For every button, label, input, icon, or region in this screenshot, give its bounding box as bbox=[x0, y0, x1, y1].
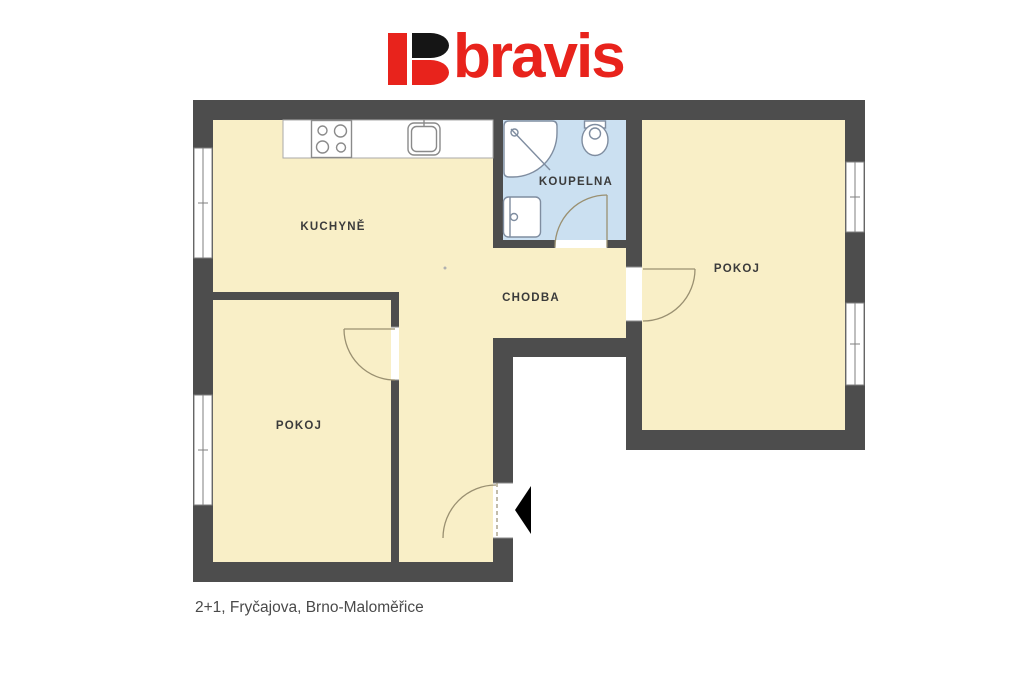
window-right-room-upper bbox=[846, 162, 864, 232]
window-kitchen-left bbox=[194, 148, 212, 258]
kitchen-fixtures bbox=[283, 120, 493, 158]
label-room-right: POKOJ bbox=[714, 263, 760, 275]
floorplan-page: bravis bbox=[0, 0, 1024, 678]
window-right-room-lower bbox=[846, 303, 864, 385]
label-hallway: CHODBA bbox=[502, 292, 560, 304]
right-room-door-opening bbox=[626, 267, 642, 321]
window-left-room bbox=[194, 395, 212, 505]
bathroom-sink bbox=[504, 197, 541, 237]
label-room-left: POKOJ bbox=[276, 420, 322, 432]
shower bbox=[504, 121, 557, 177]
kitchen-sink bbox=[408, 120, 440, 155]
wall-top bbox=[193, 100, 865, 120]
wall-right-room-bottom bbox=[626, 430, 865, 450]
wall-kitchen-leftroom-divider bbox=[193, 292, 399, 300]
floorplan-drawing: KUCHYNĚ KOUPELNA CHODBA POKOJ POKOJ bbox=[0, 0, 1024, 678]
wall-bathroom-left bbox=[493, 120, 503, 248]
entrance-door-opening bbox=[493, 483, 513, 538]
label-kitchen: KUCHYNĚ bbox=[300, 220, 365, 233]
right-room-floor bbox=[642, 120, 845, 430]
scale-mark bbox=[444, 267, 447, 270]
wall-bottom-left bbox=[193, 562, 513, 582]
listing-caption: 2+1, Fryčajova, Brno-Maloměřice bbox=[195, 599, 424, 617]
wall-right bbox=[845, 100, 865, 450]
bathroom-door-opening bbox=[555, 240, 607, 248]
stove bbox=[312, 121, 352, 158]
wall-corridor-right bbox=[493, 338, 513, 582]
entrance-arrow-icon bbox=[515, 486, 531, 534]
left-room-door-opening bbox=[391, 327, 399, 380]
toilet bbox=[582, 121, 608, 156]
wall-notch-top bbox=[493, 338, 642, 357]
label-bathroom: KOUPELNA bbox=[539, 176, 613, 188]
